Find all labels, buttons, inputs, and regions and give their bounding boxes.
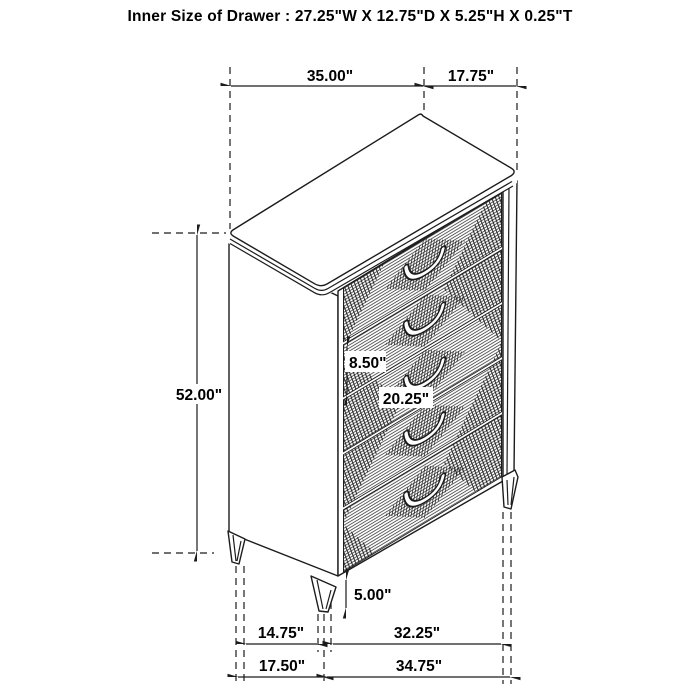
dim-label-drawer-height: 8.50"	[349, 355, 387, 372]
dim-label-top-width: 35.00"	[307, 68, 353, 85]
right-side-panel	[503, 181, 517, 481]
dim-label-side-leg-spacing: 32.25"	[394, 625, 440, 642]
dim-label-top-depth: 17.75"	[448, 68, 494, 85]
chest-dimension-drawing: 35.00" 17.75" 52.00" 8.50" 20.25" 5.00" …	[0, 0, 700, 700]
dimension-diagram-page: Inner Size of Drawer : 27.25"W X 12.75"D…	[0, 0, 700, 700]
front-left-leg	[311, 576, 336, 612]
dim-label-overall-height: 52.00"	[176, 387, 222, 404]
dim-label-side-base-width: 34.75"	[396, 658, 442, 675]
dim-label-front-base-width: 17.50"	[259, 658, 305, 675]
dim-label-front-leg-spacing: 14.75"	[258, 625, 304, 642]
dim-label-drawer-width: 20.25"	[383, 391, 429, 408]
dim-label-leg-height: 5.00"	[354, 587, 392, 604]
right-leg	[502, 470, 518, 509]
